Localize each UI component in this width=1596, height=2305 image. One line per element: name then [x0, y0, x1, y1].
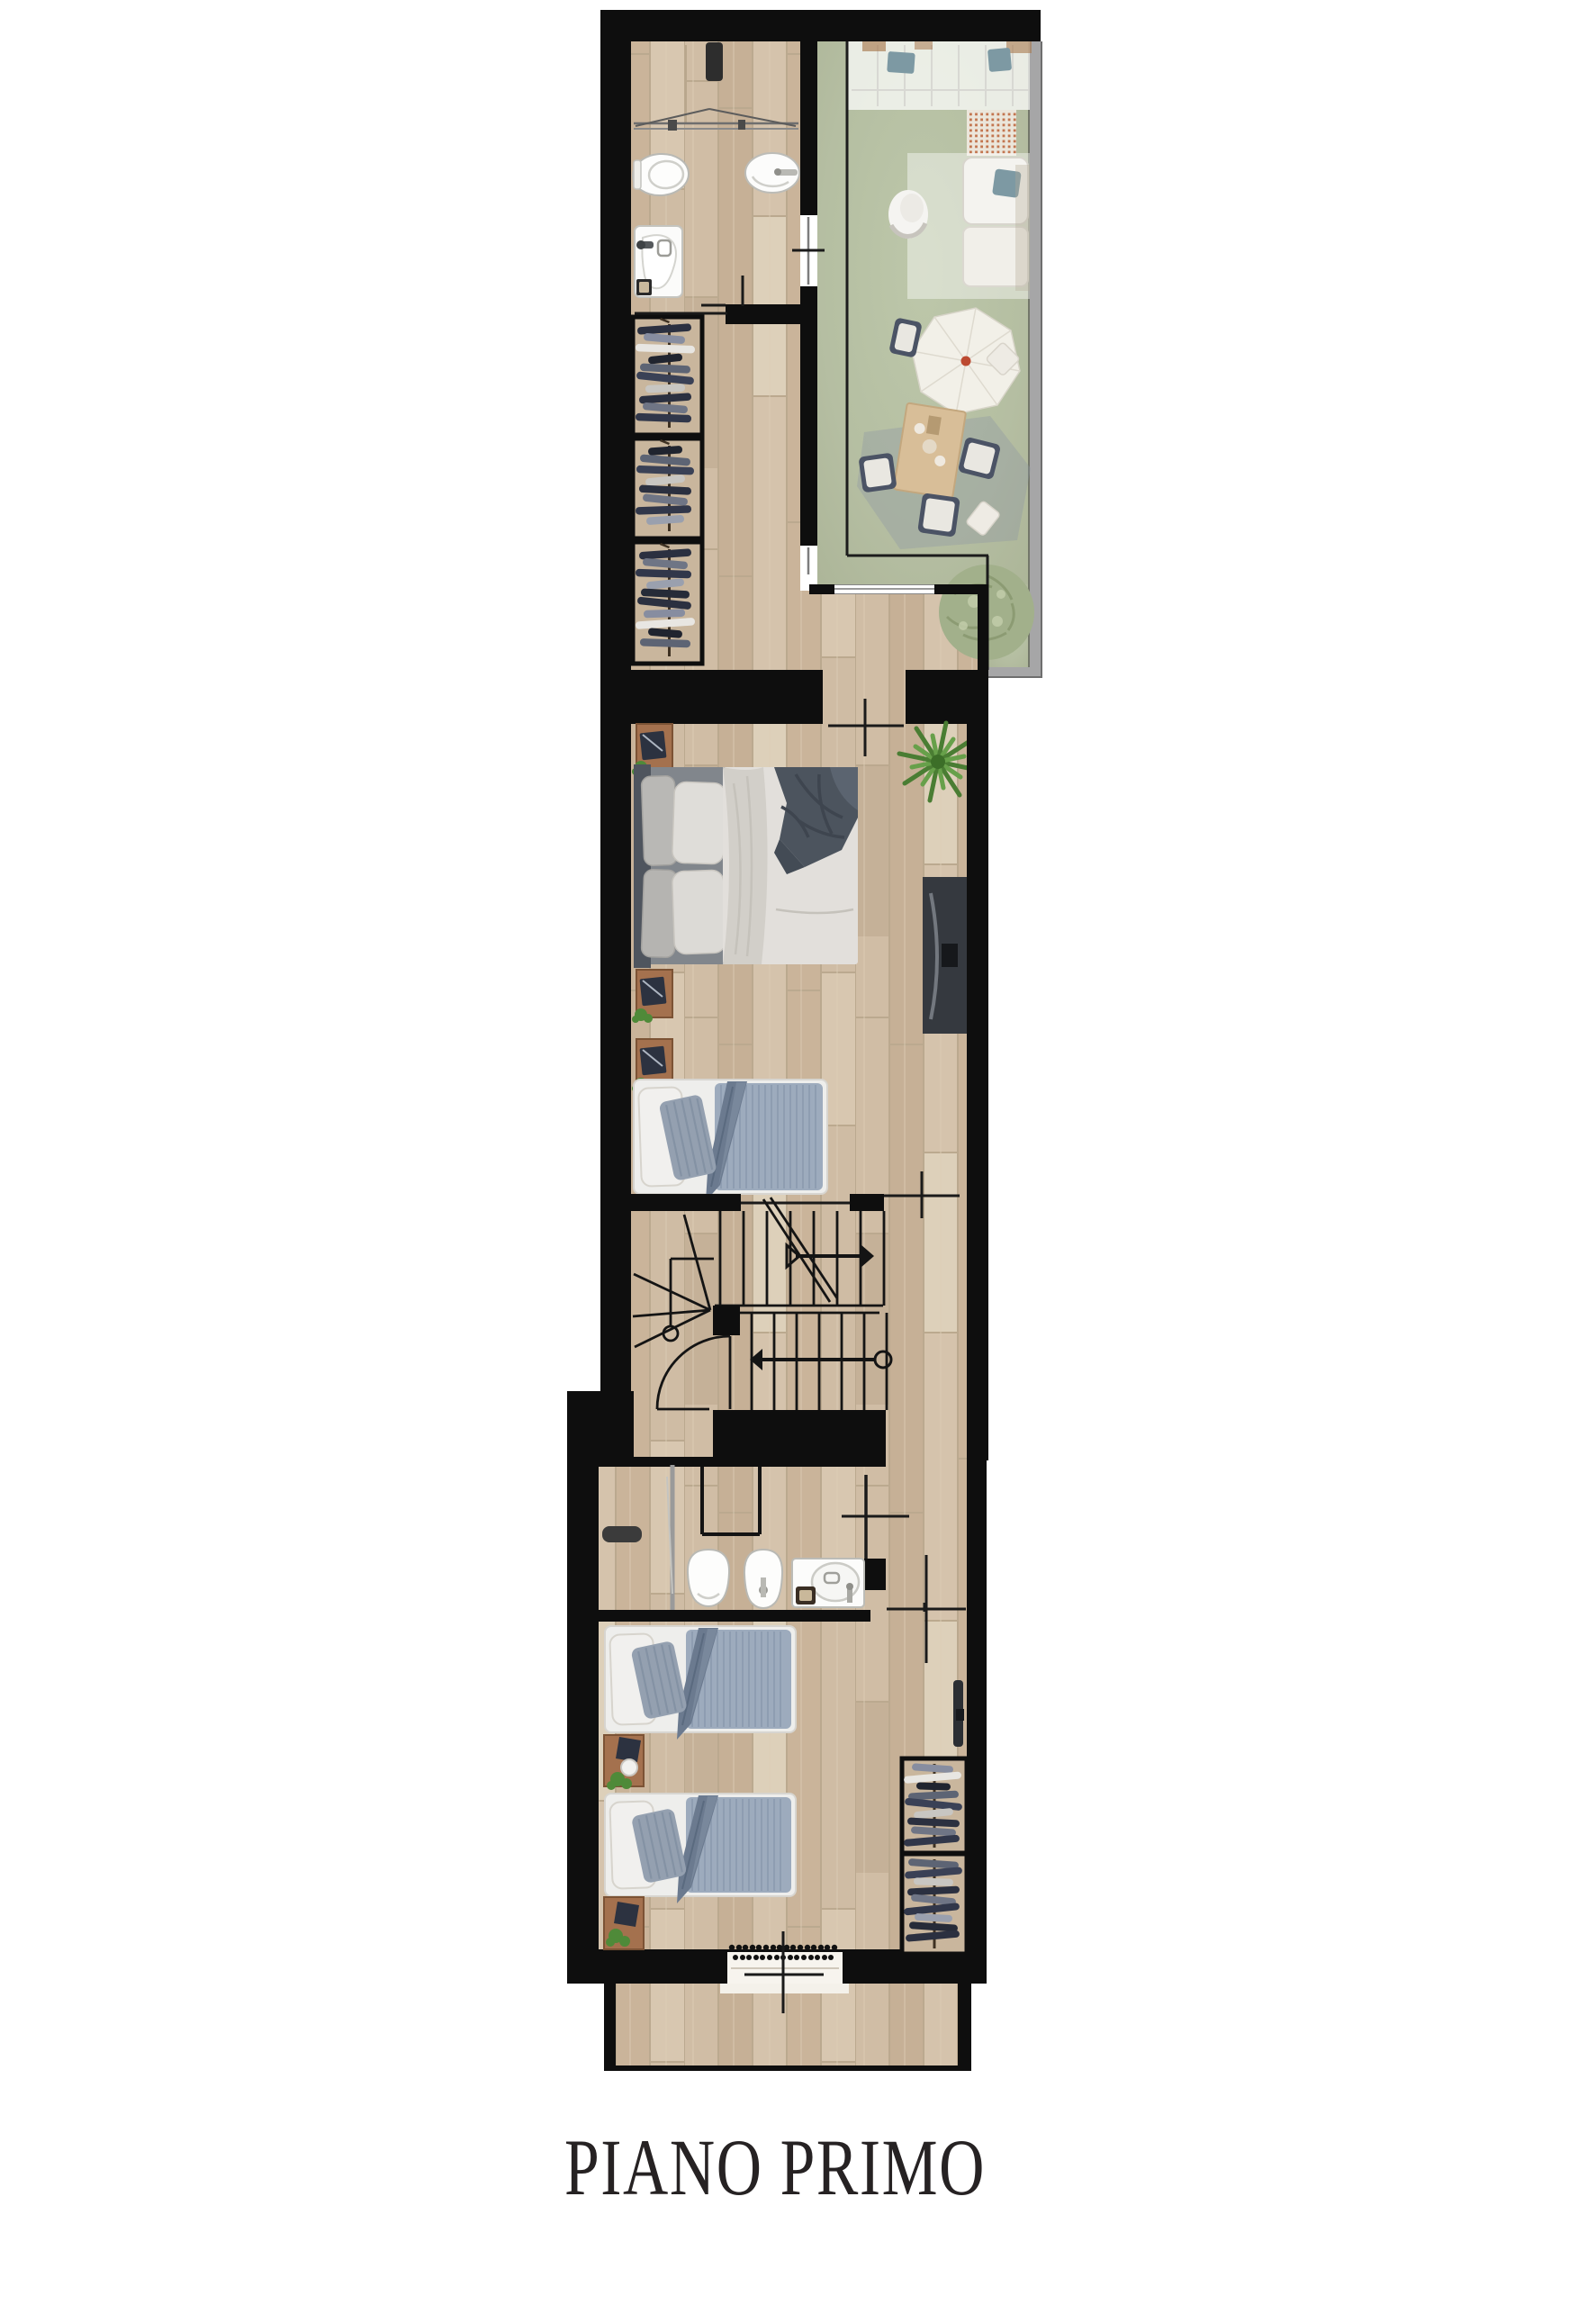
- svg-text:PIANO PRIMO: PIANO PRIMO: [564, 2124, 986, 2212]
